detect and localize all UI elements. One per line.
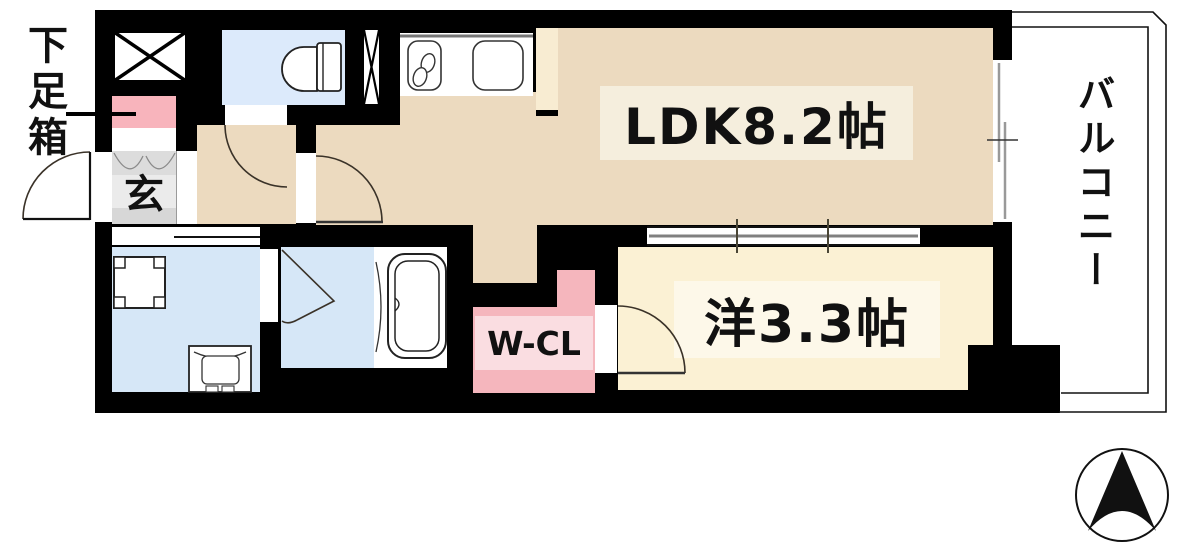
wall-corner-block (968, 345, 1060, 413)
washroom-sliding-door (112, 227, 260, 245)
room-ldk-floor (400, 92, 558, 125)
north-arrow-icon (1088, 451, 1156, 531)
bathroom-door-opening (260, 249, 278, 322)
hallway-floor (197, 125, 296, 224)
shoe-box-callout-label: 下足箱 (18, 24, 64, 164)
pipe-space (362, 28, 381, 106)
refrigerator-space (536, 28, 558, 116)
room-ldk-floor (316, 125, 558, 225)
genkan-cabinet (112, 128, 176, 151)
floor-plan: 玄 LDK8.2帖 洋3.3帖 W-CL バルコニー 下足箱 (0, 0, 1179, 552)
shoe-box (112, 96, 176, 128)
toilet-door (225, 105, 287, 125)
western-room-label: 洋3.3帖 (674, 281, 940, 358)
ldk-label: LDK8.2帖 (600, 86, 913, 160)
elevator-shaft (110, 28, 190, 85)
sliding-partition (647, 226, 920, 246)
washroom-floor (112, 247, 260, 392)
genkan-step-strip (176, 151, 197, 224)
ldk-door-opening (296, 153, 316, 223)
bathroom-floor (281, 247, 374, 368)
closet-door-opening (595, 305, 617, 373)
entrance-opening (95, 152, 112, 222)
kitchen-counter (400, 33, 533, 96)
bathtub-zone (374, 247, 447, 368)
walk-in-closet (557, 270, 595, 308)
room-ldk-floor (473, 225, 537, 283)
genkan-label: 玄 (112, 157, 176, 224)
toilet-room (222, 30, 345, 105)
compass-icon (1076, 449, 1168, 541)
balcony-label: バルコニー (1064, 74, 1112, 374)
walk-in-closet-label: W-CL (475, 316, 593, 370)
genkan-area: 玄 (112, 151, 176, 224)
